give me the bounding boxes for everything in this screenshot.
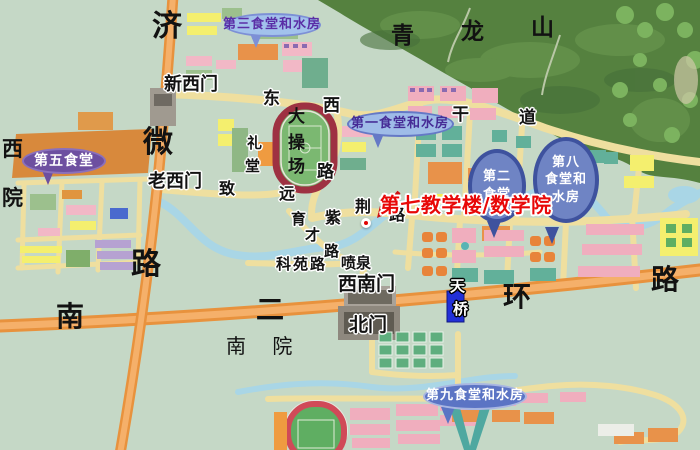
- campus-map: 第三食堂和水房第一食堂和水房第二食堂第八食堂和水房第九食堂和水房第五食堂 济微路…: [0, 0, 700, 450]
- label-gate-beimen: 北门: [349, 316, 387, 335]
- highlight-text: 第七教学楼/数学院: [380, 193, 552, 217]
- highlight-label: 第七教学楼/数学院: [350, 165, 552, 242]
- label-road-gandao-1: 干: [452, 107, 469, 124]
- label-road-jiwei-3: 路: [131, 250, 161, 280]
- label-mountain-qinglongshan-2: 龙: [461, 21, 484, 44]
- label-xiyuan-2: 院: [2, 188, 23, 209]
- label-mountain-qinglongshan-1: 青: [391, 25, 414, 48]
- label-road-zijin-1: 紫: [325, 210, 341, 226]
- label-gate-xinximen: 新西门: [164, 76, 218, 94]
- label-road-dongxi-3: 路: [317, 164, 334, 181]
- label-fountain-penquan: 喷泉: [341, 256, 371, 271]
- label-road-erhuan-1: 南: [56, 303, 84, 331]
- label-road-erhuan-2: 二: [256, 296, 284, 324]
- label-road-yucai-2: 才: [305, 228, 320, 243]
- label-road-jiwei-1: 济: [152, 12, 182, 42]
- label-road-yucai-1: 育: [291, 212, 306, 227]
- label-mountain-qinglongshan-3: 山: [531, 17, 554, 40]
- label-road-erhuan-3: 环: [503, 283, 531, 311]
- label-dacaochang-1: 大: [288, 109, 305, 126]
- label-road-zhiyuan-2: 远: [279, 186, 295, 202]
- label-bridge-tianqiao-1: 天: [450, 279, 465, 294]
- label-gate-xinanmen: 西南门: [338, 275, 395, 294]
- label-road-keyuan: 科苑路: [276, 257, 327, 272]
- label-litang-1: 礼: [247, 136, 262, 151]
- label-xiyuan-1: 西: [2, 139, 23, 160]
- label-road-zhiyuan-1: 致: [219, 181, 235, 197]
- label-dacaochang-3: 场: [288, 159, 305, 176]
- label-dacaochang-2: 操: [288, 135, 305, 152]
- label-bridge-tianqiao-2: 桥: [453, 302, 468, 317]
- label-road-dongxi-1: 东: [263, 91, 280, 108]
- label-road-gandao-2: 道: [519, 110, 536, 127]
- label-road-jiwei-2: 微: [143, 128, 173, 158]
- label-road-dongxi-2: 西: [323, 98, 340, 115]
- label-road-erhuan-4: 路: [651, 266, 679, 294]
- label-nanyuan: 南 院: [226, 336, 302, 356]
- label-litang-2: 堂: [245, 159, 260, 174]
- label-gate-laoximen: 老西门: [148, 173, 202, 191]
